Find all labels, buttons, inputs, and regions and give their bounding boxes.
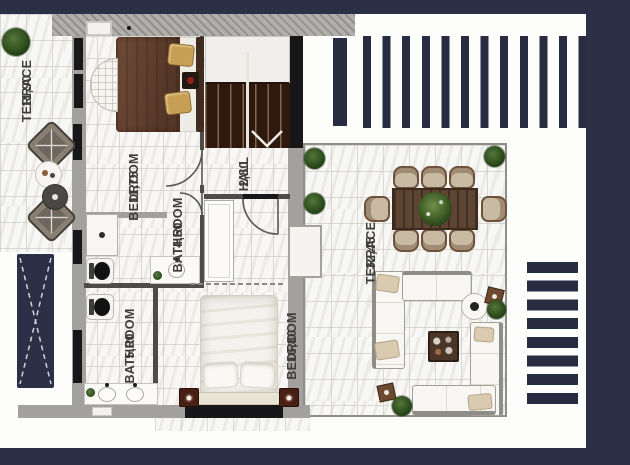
pergola-stripes-top <box>363 36 586 128</box>
dining-chair <box>421 229 447 252</box>
sofa <box>402 271 472 301</box>
exterior-wall-right-dark <box>288 36 303 148</box>
sofa-cushion <box>474 326 495 342</box>
dining-chair <box>393 166 419 189</box>
room-label-terrace-2: TERRACE 32,45 <box>354 198 388 308</box>
room-area: 16,80 <box>285 330 299 363</box>
frame-right-bar <box>586 0 630 465</box>
room-area: 32,45 <box>364 237 378 270</box>
room-label-bedroom-2: BEDROOM 16,80 <box>275 291 309 401</box>
pillow <box>164 90 192 115</box>
dining-chair <box>393 229 419 252</box>
room-area: 5,00 <box>123 333 137 359</box>
room-area: 11,90 <box>20 75 34 107</box>
pergola-beam <box>333 38 347 126</box>
room-area: 4,50 <box>171 222 185 248</box>
headboard <box>196 392 282 405</box>
interior-wall <box>278 194 290 199</box>
toilet <box>86 258 114 284</box>
bedside-table <box>179 388 199 407</box>
room-label-terrace-1: TERRACE 11,90 <box>10 36 44 146</box>
window <box>73 230 82 264</box>
interior-wall <box>200 185 204 193</box>
pergola-stripes-right <box>527 262 578 404</box>
sofa-cushion <box>467 393 492 411</box>
potted-plant <box>304 193 325 214</box>
room-label-bathroom-1: BATHROOM 4,50 <box>161 180 195 290</box>
dining-chair <box>449 166 475 189</box>
room-label-bedroom-1: BEDROOM 11,75 <box>117 132 151 242</box>
potted-plant <box>392 396 412 416</box>
pillow <box>167 43 195 68</box>
pillow <box>239 361 275 389</box>
room-area: 11,75 <box>127 171 141 203</box>
wall-niche <box>92 407 112 416</box>
frame-top-bar <box>0 0 630 14</box>
coffee-table <box>428 331 459 362</box>
sofa-cushion <box>374 339 401 361</box>
round-side-table <box>42 184 68 210</box>
shower <box>86 214 118 256</box>
dining-chair <box>421 166 447 189</box>
room-area: 2,80 <box>237 161 251 187</box>
pillow <box>202 361 238 389</box>
toilet <box>86 294 114 320</box>
potted-plant <box>487 300 506 319</box>
dining-chair <box>481 196 507 222</box>
potted-plant <box>304 148 325 169</box>
floor-plan: TERRACE 11,90 BEDROOM 11,75 HALL 2,80 BA… <box>0 0 630 465</box>
dining-chair <box>449 229 475 252</box>
sun-lounger-straps <box>20 258 51 384</box>
potted-plant <box>484 146 505 167</box>
sun-lounger <box>17 254 54 388</box>
small-plant <box>86 388 95 397</box>
round-side-table <box>461 293 488 320</box>
window <box>73 330 82 383</box>
frame-bottom-bar <box>0 448 630 465</box>
wall-niche <box>86 21 112 36</box>
bay-window <box>288 225 322 278</box>
window <box>185 405 283 418</box>
table-centerpiece-plant <box>418 192 452 226</box>
bedside-table <box>182 72 199 89</box>
window <box>74 38 83 70</box>
room-label-hall: HALL 2,80 <box>227 119 261 229</box>
window <box>74 74 83 108</box>
room-label-bathroom-2: BATHROOM 5,00 <box>113 291 147 401</box>
